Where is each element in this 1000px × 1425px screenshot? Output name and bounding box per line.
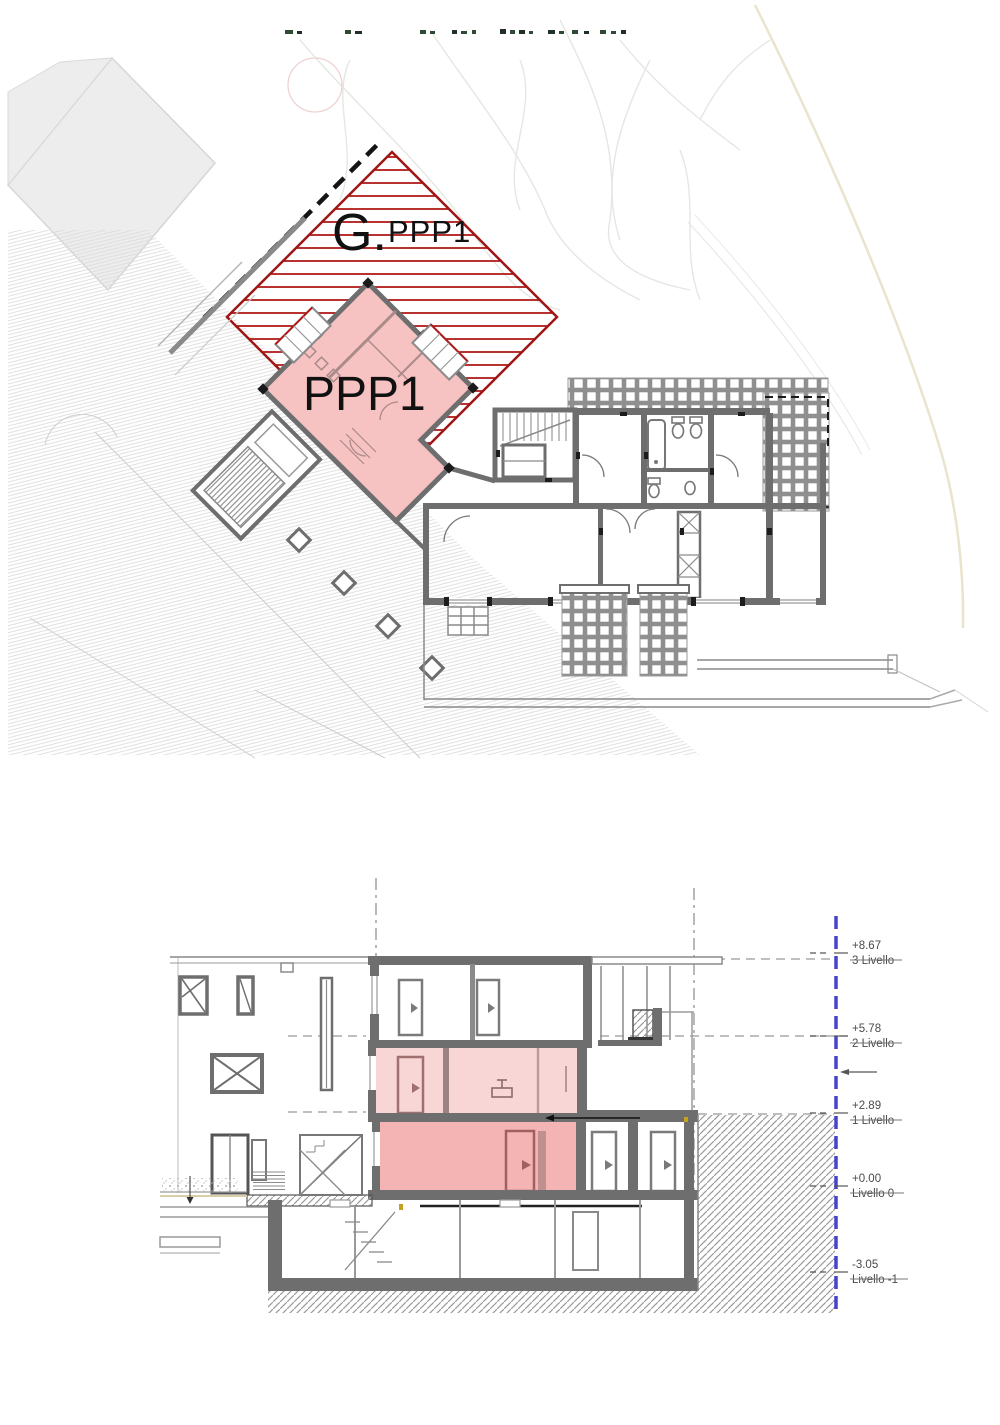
bath-partition xyxy=(645,468,708,472)
foundation-slab xyxy=(268,1278,698,1291)
level-annotation-1: +2.89 1 Livello xyxy=(850,1100,902,1127)
level3-terrace xyxy=(598,966,694,1112)
floor-plan: G. PPP1 PPP1 xyxy=(8,5,988,758)
architectural-drawing: G. PPP1 PPP1 xyxy=(0,0,1000,1425)
level-value: +8.67 xyxy=(852,940,881,952)
level-annotation-2: +5.78 2 Livello xyxy=(850,1023,902,1050)
basement xyxy=(268,1200,694,1280)
roof-fascia-left xyxy=(170,957,370,972)
level2-highlight xyxy=(368,1048,587,1113)
garden-label-unit: PPP1 xyxy=(388,214,471,249)
level-name: 3 Livello xyxy=(852,955,894,967)
level-annotation-0: +0.00 Livello 0 xyxy=(850,1173,904,1200)
level-value: +2.89 xyxy=(852,1100,881,1112)
level3-rooms xyxy=(370,964,592,1042)
level-value: +5.78 xyxy=(852,1023,881,1035)
level-value: -3.05 xyxy=(852,1259,878,1271)
level-name: 2 Livello xyxy=(852,1038,894,1050)
elevation-details xyxy=(160,977,362,1253)
level-name: 1 Livello xyxy=(852,1115,894,1127)
level-name: Livello 0 xyxy=(852,1188,894,1200)
cropped-top-marks xyxy=(285,29,626,34)
roof-overhang-right xyxy=(592,957,722,964)
slab-l1-base xyxy=(368,1190,698,1200)
balcony-grid-bottom xyxy=(560,585,689,676)
slab-l2-l1 xyxy=(368,1113,698,1122)
level-value: +0.00 xyxy=(852,1173,881,1185)
basement-stair xyxy=(345,1212,395,1270)
vent-grid xyxy=(448,607,488,635)
terrace-grid-top xyxy=(568,378,829,511)
wall-link xyxy=(449,468,495,481)
stair-block xyxy=(495,410,575,480)
gravel-strip xyxy=(162,1178,238,1191)
level-annotation-minus1: -3.05 Livello -1 xyxy=(850,1259,908,1286)
level1-highlight xyxy=(372,1122,586,1192)
left-arrow-pointer xyxy=(840,1069,877,1075)
bathtub xyxy=(648,420,665,470)
section-drawing: +8.67 3 Livello +5.78 2 Livello +2.89 1 … xyxy=(160,878,908,1313)
drawing-sheet: G. PPP1 PPP1 xyxy=(0,0,1000,1425)
level-annotation-3: +8.67 3 Livello xyxy=(850,940,902,967)
roof-slab xyxy=(368,956,592,965)
level-name: Livello -1 xyxy=(852,1274,898,1286)
garden-label-prefix: G. xyxy=(332,204,387,262)
exterior-stair xyxy=(300,1135,362,1195)
slab-l3-l2 xyxy=(368,1040,592,1048)
level1-right-rooms xyxy=(586,1122,694,1192)
apartment-label: PPP1 xyxy=(303,368,426,421)
